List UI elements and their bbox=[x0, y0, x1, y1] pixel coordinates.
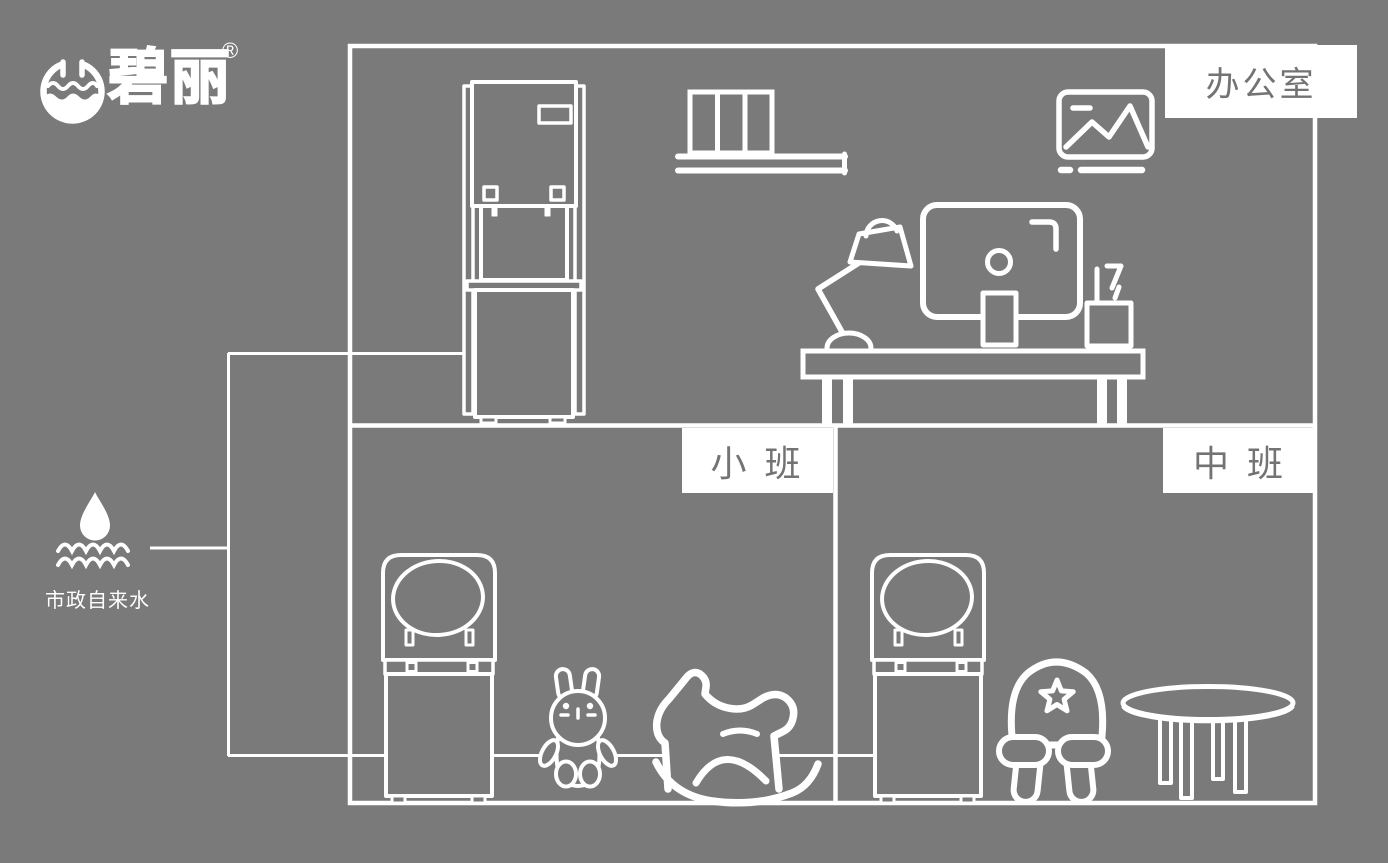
bunny-foot-left bbox=[556, 762, 576, 787]
bunny-foot-right bbox=[580, 762, 600, 787]
water-bowl-logo-icon bbox=[44, 62, 102, 120]
room-label-office: 办公室 bbox=[1165, 45, 1357, 118]
rocking-horse-icon bbox=[656, 673, 818, 803]
kindergarten-water-dispenser-icon bbox=[872, 555, 984, 803]
room-label-junior-class-text: 小 班 bbox=[710, 435, 804, 487]
dispenser-button-right bbox=[551, 187, 564, 200]
brand-name: 碧丽 bbox=[108, 48, 232, 108]
pen-cup bbox=[1087, 303, 1131, 346]
table-leg-3 bbox=[1213, 714, 1223, 779]
monitor-icon bbox=[923, 205, 1080, 345]
dispenser-alcove bbox=[481, 206, 567, 280]
table-leg-4 bbox=[1235, 717, 1246, 792]
floor-standing-water-dispenser-icon bbox=[464, 82, 584, 423]
picture-frame-icon bbox=[1059, 92, 1152, 170]
lamp-base bbox=[827, 333, 871, 348]
desk-icon bbox=[803, 351, 1143, 424]
pen-tick bbox=[1115, 287, 1119, 298]
desk-leg-3 bbox=[1097, 377, 1107, 424]
chair-armrest-right bbox=[1058, 737, 1108, 765]
dispenser-foot-right bbox=[550, 417, 565, 423]
table-leg-2 bbox=[1181, 718, 1192, 798]
water-drop-waves-icon bbox=[58, 492, 128, 565]
dispenser-display bbox=[539, 106, 571, 123]
dispenser-tap-right bbox=[545, 207, 550, 216]
monitor-camera-dot bbox=[988, 251, 1011, 274]
chair-armrest-left bbox=[999, 737, 1049, 765]
registered-trademark-symbol: ® bbox=[222, 38, 238, 64]
dispenser-cabinet bbox=[475, 290, 573, 417]
brand-logo: 碧丽 ® bbox=[108, 48, 232, 108]
wave-line-1 bbox=[58, 545, 128, 552]
bunny-eye-right bbox=[587, 703, 593, 709]
water-source-label: 市政自来水 bbox=[30, 584, 165, 613]
desk-top bbox=[803, 351, 1143, 377]
bunny-eye-left bbox=[563, 703, 569, 709]
dispenser-tap-left bbox=[492, 207, 497, 216]
lamp-shade bbox=[850, 227, 911, 266]
room-label-middle-class: 中 班 bbox=[1163, 428, 1317, 493]
desk-lamp-icon bbox=[818, 221, 911, 348]
dispenser-foot-left bbox=[481, 417, 496, 423]
water-drop bbox=[80, 492, 110, 541]
kids-chair-icon bbox=[999, 662, 1108, 803]
room-label-office-text: 办公室 bbox=[1206, 57, 1317, 106]
table-leg-1 bbox=[1160, 715, 1171, 783]
bunny-toy-icon bbox=[536, 668, 620, 786]
kindergarten-water-dispenser-icon bbox=[383, 555, 495, 803]
desk-leg-1 bbox=[822, 377, 832, 424]
books bbox=[690, 92, 772, 153]
round-table-icon bbox=[1123, 687, 1293, 799]
installation-diagram: { "colors": { "background": "#7a7a7a", "… bbox=[0, 0, 1388, 863]
pen-holder-icon bbox=[1087, 266, 1131, 346]
desk-leg-2 bbox=[843, 377, 853, 424]
room-label-middle-class-text: 中 班 bbox=[1193, 435, 1287, 487]
wave-line-2 bbox=[58, 559, 128, 566]
lamp-arm bbox=[818, 261, 862, 339]
bookshelf-icon bbox=[678, 92, 845, 173]
monitor-stand bbox=[983, 293, 1016, 345]
horse-saddle-line bbox=[723, 731, 757, 735]
logo-wave-line bbox=[48, 83, 97, 89]
room-label-junior-class: 小 班 bbox=[682, 428, 833, 493]
dispenser-button-left bbox=[484, 187, 497, 200]
desk-leg-4 bbox=[1117, 377, 1127, 424]
